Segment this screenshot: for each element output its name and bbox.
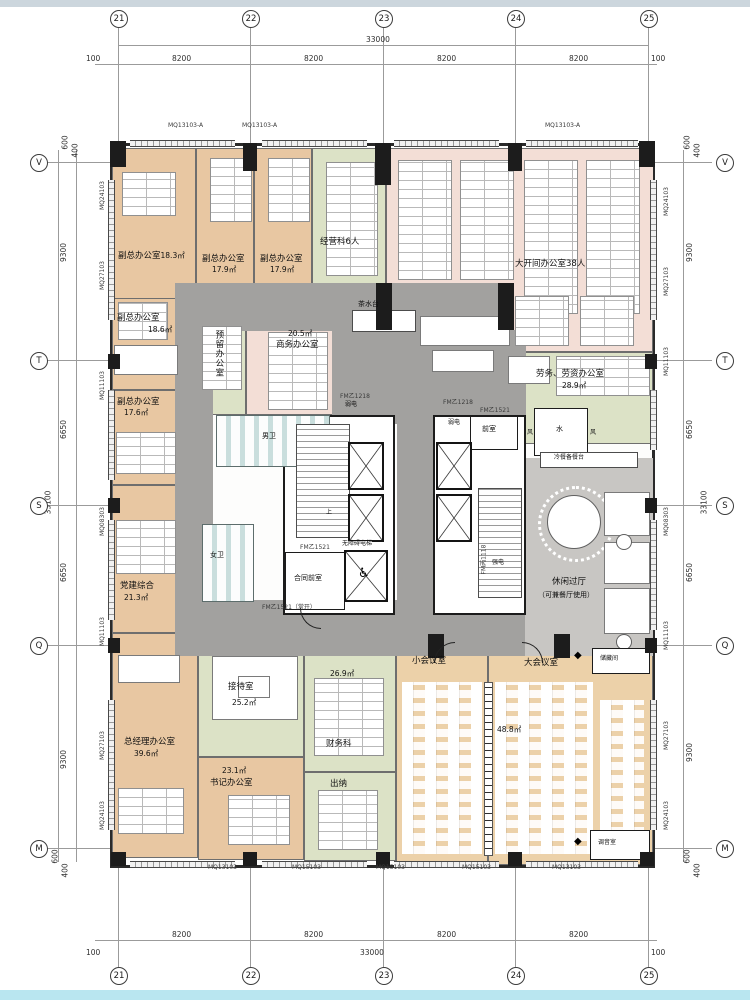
pier — [108, 498, 120, 513]
grid-bubble-23-top: 23 — [375, 10, 393, 28]
grid-bubble-21-bottom: 21 — [110, 967, 128, 985]
pier — [110, 141, 126, 167]
sofa — [118, 655, 180, 683]
wall-code: MQ13103 — [552, 864, 581, 871]
dim-v: 6650 — [59, 420, 68, 439]
wall-code: MQ11103 — [99, 371, 106, 400]
desk-cluster — [524, 160, 578, 314]
room-area: 23.1㎡ — [222, 767, 246, 775]
desk-cluster — [580, 296, 634, 346]
pier — [645, 498, 657, 513]
vent-label: 风 — [590, 430, 596, 436]
wall-code: MQ15103 — [376, 864, 405, 871]
dim-line — [118, 45, 649, 46]
dim-e600: 600 — [61, 135, 70, 149]
desk-cluster — [118, 788, 184, 834]
weak-power-label: 弱电 — [448, 420, 460, 426]
desk-cluster — [116, 432, 176, 474]
dim-v: 6650 — [685, 420, 694, 439]
desk-cluster — [398, 160, 452, 280]
dim-bay: 8200 — [304, 54, 323, 63]
window-band — [394, 140, 499, 147]
wall-code: MQ15103 — [462, 864, 491, 871]
dim-e600: 600 — [683, 849, 692, 863]
wall-code: MQ13103-A — [168, 122, 203, 129]
vent-label: 风 — [527, 430, 533, 436]
grid-line — [46, 360, 110, 361]
seating-rows — [600, 700, 644, 848]
dim-bay: 8200 — [437, 930, 456, 939]
room-label: 党建综合 — [120, 582, 154, 591]
room-label: 接待室 — [228, 683, 254, 692]
pier — [639, 141, 655, 167]
grid-bubble-Q-right: Q — [716, 637, 734, 655]
wall-code: MQ27103 — [663, 267, 670, 296]
window-band — [650, 700, 657, 830]
desk-cluster — [318, 790, 378, 850]
wall-code: MQ24103 — [663, 187, 670, 216]
grid-bubble-S-left: S — [30, 497, 48, 515]
grid-bubble-T-left: T — [30, 352, 48, 370]
grid-line — [118, 26, 119, 143]
floor-plan-canvas: 21 22 23 24 25 21 22 23 24 25 V T S Q M … — [0, 0, 750, 1000]
dim-e400: 400 — [71, 143, 80, 157]
dim-e600: 600 — [683, 135, 692, 149]
desk-cluster — [586, 160, 640, 314]
room-label: 储藏间 — [600, 656, 618, 662]
wall-code: MQ27103 — [99, 261, 106, 290]
dim-bay: 8200 — [172, 54, 191, 63]
room-area: 17.9㎡ — [212, 266, 236, 274]
elevator-shaft — [436, 494, 472, 542]
grid-bubble-M-right: M — [716, 840, 734, 858]
window-band — [108, 520, 115, 620]
wall-code: MQ24103 — [663, 801, 670, 830]
elevator-shaft — [436, 442, 472, 490]
grid-bubble-22-bottom: 22 — [242, 967, 260, 985]
door-code: FM乙1218 — [443, 397, 473, 406]
dim-line — [683, 150, 684, 862]
room-area: 48.8㎡ — [497, 726, 521, 734]
room-area: 28.9㎡ — [562, 382, 586, 390]
grid-bubble-V-left: V — [30, 154, 48, 172]
grid-bubble-24-top: 24 — [507, 10, 525, 28]
room-label: 经营科6人 — [320, 238, 359, 247]
door-code: FM乙1521（常开） — [262, 602, 316, 611]
dim-edge: 100 — [86, 948, 100, 957]
room-label: 财务科 — [326, 740, 352, 749]
accessible-elevator-label: 无障碍电梯 — [342, 541, 372, 547]
wall-code: MQ08303 — [99, 507, 106, 536]
dim-bay: 8200 — [569, 930, 588, 939]
window-band — [650, 520, 657, 630]
room-label-sub: （可兼餐厅使用） — [538, 592, 594, 599]
desk-cluster — [122, 172, 176, 216]
grid-line — [515, 26, 516, 143]
window-band — [108, 180, 115, 320]
room-area: 21.3㎡ — [124, 594, 148, 602]
room-label: 书记办公室 — [210, 779, 253, 788]
sofa — [114, 345, 178, 375]
pier — [640, 852, 654, 866]
dim-e400: 400 — [61, 863, 70, 877]
mens-toilet-label: 男卫 — [262, 433, 276, 440]
pier — [554, 634, 570, 658]
desk-cluster — [116, 520, 176, 574]
window-band — [526, 140, 638, 147]
grid-line — [118, 868, 119, 967]
dim-line — [76, 150, 77, 862]
room-area: 39.6㎡ — [134, 750, 158, 758]
pier — [108, 354, 120, 369]
wall-code: MQ27103 — [663, 721, 670, 750]
room-label: 总经理办公室 — [124, 738, 175, 747]
dim-v: 9300 — [59, 243, 68, 262]
door-code: FM乙1521 — [300, 542, 330, 551]
grid-bubble-25-bottom: 25 — [640, 967, 658, 985]
window-top-strip — [0, 0, 750, 7]
wall-code: MQ13103-A — [545, 122, 580, 129]
stair-left — [296, 424, 350, 538]
dim-edge: 100 — [651, 54, 665, 63]
room-area: 25.2㎡ — [232, 699, 256, 707]
grid-bubble-24-bottom: 24 — [507, 967, 525, 985]
weak-power-label: 弱电 — [345, 402, 357, 408]
wall-code: MQ13103-A — [242, 122, 277, 129]
grid-line — [46, 505, 110, 506]
room-label: 副总办公室18.3㎡ — [118, 252, 185, 261]
dim-bay: 8200 — [304, 930, 323, 939]
desk-cluster — [460, 160, 514, 280]
desk-cluster — [326, 162, 378, 276]
window-band — [130, 140, 235, 147]
door-code: FM乙1218 — [340, 391, 370, 400]
room-label: 小会议室 — [412, 657, 446, 666]
stair-right — [478, 488, 522, 598]
room-label: 预留办公室 — [214, 330, 223, 410]
window-band — [650, 390, 657, 450]
grid-bubble-25-top: 25 — [640, 10, 658, 28]
womens-toilet-label: 女卫 — [210, 552, 224, 559]
dim-bay: 8200 — [569, 54, 588, 63]
grid-line — [46, 162, 110, 163]
window-band — [650, 180, 657, 320]
contract-lobby-label: 合同前室 — [294, 575, 322, 582]
wall-code: MQ24103 — [99, 181, 106, 210]
desk-cluster — [515, 296, 569, 346]
wall-code: MQ13103 — [208, 864, 237, 871]
dim-v: 6650 — [685, 563, 694, 582]
grid-bubble-M-left: M — [30, 840, 48, 858]
stair-up-label: 上 — [326, 510, 332, 516]
room-label: 出纳 — [330, 780, 347, 789]
room-label: 商务办公室 — [276, 341, 319, 350]
room-label: 副总办公室 — [117, 314, 160, 323]
dim-v: 9300 — [59, 750, 68, 769]
pier — [508, 852, 522, 866]
pier — [111, 852, 126, 866]
folding-partition — [484, 682, 493, 856]
room-label: 休闲过厅 — [552, 578, 586, 587]
window-band — [108, 700, 115, 830]
grid-bubble-23-bottom: 23 — [375, 967, 393, 985]
desk-cluster — [228, 795, 290, 845]
desk-cluster — [268, 158, 310, 222]
pier — [108, 638, 120, 653]
wall-code: MQ08303 — [663, 507, 670, 536]
room-area: 17.9㎡ — [270, 266, 294, 274]
grid-bubble-22-top: 22 — [242, 10, 260, 28]
room-label: 大开间办公室38人 — [515, 260, 585, 269]
dim-line — [95, 940, 657, 941]
pier — [375, 143, 391, 185]
grid-bubble-Q-left: Q — [30, 637, 48, 655]
pier — [243, 143, 257, 171]
room-area: 20.5㎡ — [288, 330, 312, 338]
round-table — [547, 495, 601, 549]
strong-power-label: 强电 — [492, 560, 504, 566]
dim-total-width-top: 33000 — [366, 35, 390, 44]
grid-line — [648, 868, 649, 967]
elevator-shaft — [348, 494, 384, 542]
wall-code: MQ11103 — [663, 347, 670, 376]
window-bottom-strip — [0, 990, 750, 1000]
door-code: FM丙1118 — [478, 545, 487, 575]
dim-v: 9300 — [685, 743, 694, 762]
dim-total-width-bottom: 33000 — [360, 948, 384, 957]
window-band — [262, 140, 367, 147]
sofa — [420, 316, 510, 346]
sofa — [604, 492, 650, 536]
grid-bubble-T-right: T — [716, 352, 734, 370]
window-band — [108, 390, 115, 480]
dim-v: 6650 — [59, 563, 68, 582]
dim-bay: 8200 — [437, 54, 456, 63]
wall-code: MQ11103 — [663, 621, 670, 650]
pier — [508, 143, 522, 171]
seating-rows — [495, 682, 593, 854]
grid-line — [250, 868, 251, 967]
dim-edge: 100 — [651, 948, 665, 957]
grid-bubble-V-right: V — [716, 154, 734, 172]
door-code: FM乙1521 — [480, 405, 510, 414]
grid-line — [515, 868, 516, 967]
grid-bubble-21-top: 21 — [110, 10, 128, 28]
pier — [498, 283, 514, 330]
wheelchair-icon: ♿ — [358, 566, 370, 581]
dim-e600: 600 — [51, 849, 60, 863]
grid-line — [648, 26, 649, 143]
tea-counter-label: 茶水台 — [358, 301, 379, 308]
room-label: 调音室 — [598, 840, 616, 846]
room-label: 劳务、劳资办公室 — [536, 370, 604, 379]
water-room-label: 水 — [556, 426, 563, 433]
dim-bay: 8200 — [172, 930, 191, 939]
wall-code: MQ15103 — [292, 864, 321, 871]
buffet-counter-label: 冷餐备餐台 — [554, 455, 584, 461]
sofa — [604, 588, 650, 634]
sofa — [432, 350, 494, 372]
wall-code: MQ11103 — [99, 617, 106, 646]
pier — [243, 852, 257, 866]
side-table — [616, 534, 632, 550]
dim-total-height-right: 33100 — [699, 491, 708, 515]
window-band — [526, 861, 638, 868]
room-label: 大会议室 — [524, 659, 558, 668]
room-label: 副总办公室 — [260, 255, 303, 264]
front-room-label: 前室 — [482, 426, 496, 433]
womens-toilet — [202, 524, 254, 602]
corridor-core — [397, 424, 433, 614]
room-area: 18.6㎡ — [148, 326, 172, 334]
dim-v: 9300 — [685, 243, 694, 262]
pier — [645, 354, 657, 369]
wall-code: MQ27103 — [99, 731, 106, 760]
room-label: 副总办公室 — [202, 255, 245, 264]
room-area: 17.6㎡ — [124, 409, 148, 417]
elevator-shaft — [348, 442, 384, 490]
room-area: 26.9㎡ — [330, 670, 354, 678]
dim-e400: 400 — [693, 863, 702, 877]
grid-bubble-S-right: S — [716, 497, 734, 515]
room-label: 副总办公室 — [117, 398, 160, 407]
fan-symbol: ◆ — [574, 836, 582, 847]
dim-line — [95, 64, 657, 65]
seating-rows — [402, 682, 482, 854]
wall-code: MQ24103 — [99, 801, 106, 830]
dim-e400: 400 — [693, 143, 702, 157]
fan-symbol: ◆ — [574, 650, 582, 661]
dim-edge: 100 — [86, 54, 100, 63]
pier — [645, 638, 657, 653]
